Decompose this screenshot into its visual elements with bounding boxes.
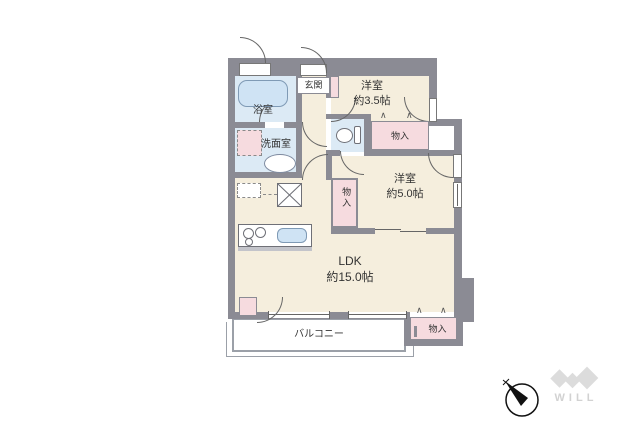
folding-door-icon: ∧ bbox=[380, 111, 387, 120]
room-label-western-3-5: 洋室 約3.5帖 bbox=[322, 79, 422, 109]
door-arc-entrance bbox=[301, 47, 327, 73]
closet-label: 物入 bbox=[340, 187, 352, 209]
toilet-icon bbox=[336, 128, 353, 143]
wall-segment bbox=[228, 172, 302, 178]
sliding-door-line bbox=[400, 231, 426, 232]
pipe-shaft-icon bbox=[277, 183, 302, 207]
sliding-door-line bbox=[375, 229, 401, 230]
ldk-window-2 bbox=[348, 312, 407, 318]
wall-segment bbox=[235, 122, 265, 128]
folding-door-icon: ∧ bbox=[416, 306, 423, 315]
door-arc-bath-window bbox=[240, 37, 266, 63]
room-label-western-5-0: 洋室 約5.0帖 bbox=[355, 172, 455, 202]
compass-icon bbox=[500, 377, 544, 421]
folding-door-icon: ∧ bbox=[440, 306, 447, 315]
stove-burner-icon bbox=[255, 227, 266, 238]
bathtub-icon bbox=[238, 80, 288, 107]
toilet-tank-icon bbox=[354, 126, 361, 144]
dashed-boundary bbox=[263, 194, 277, 195]
closet-label: 物入 bbox=[372, 130, 428, 142]
washbasin-icon bbox=[264, 154, 296, 173]
closet-room-3-5: 物入 bbox=[371, 121, 429, 150]
closet-label: 物入 bbox=[415, 323, 460, 335]
stove-burner-icon bbox=[245, 238, 253, 246]
room-label-ldk: LDK 約15.0帖 bbox=[300, 253, 400, 285]
wall-segment bbox=[426, 228, 454, 234]
closet-ldk: 物入 bbox=[410, 317, 457, 340]
fridge-space bbox=[237, 183, 261, 198]
wall-segment bbox=[404, 340, 463, 346]
floor-plan-canvas: 物入 ∧ ∧ 物入 物入 ∧ ∧ 玄関 浴室 洗面室 洋室 約3.5帖 洋室 約… bbox=[0, 0, 640, 427]
folding-door-icon: ∧ bbox=[406, 111, 413, 120]
bath-window-leaf bbox=[239, 63, 271, 76]
counter-edge bbox=[238, 247, 312, 251]
ldk-window-1-line bbox=[268, 314, 330, 315]
window-leaf-3-5 bbox=[429, 98, 437, 122]
wall-segment bbox=[331, 228, 375, 234]
closet-room-5-0: 物入 bbox=[331, 178, 358, 228]
room-label-bath: 浴室 bbox=[245, 104, 281, 118]
wall-segment bbox=[284, 122, 296, 128]
kitchen-counter bbox=[238, 224, 312, 247]
logo-text: WILL bbox=[549, 391, 603, 406]
ldk-window-2-line bbox=[348, 314, 407, 315]
ldk-corner-closet bbox=[239, 297, 257, 316]
wall-segment bbox=[228, 58, 235, 319]
logo-diamond-icon bbox=[576, 367, 599, 390]
will-logo: WILL bbox=[546, 366, 606, 408]
room-label-washroom: 洗面室 bbox=[254, 138, 298, 152]
kitchen-sink-icon bbox=[277, 228, 307, 243]
balcony-label: バルコニー bbox=[232, 328, 406, 342]
